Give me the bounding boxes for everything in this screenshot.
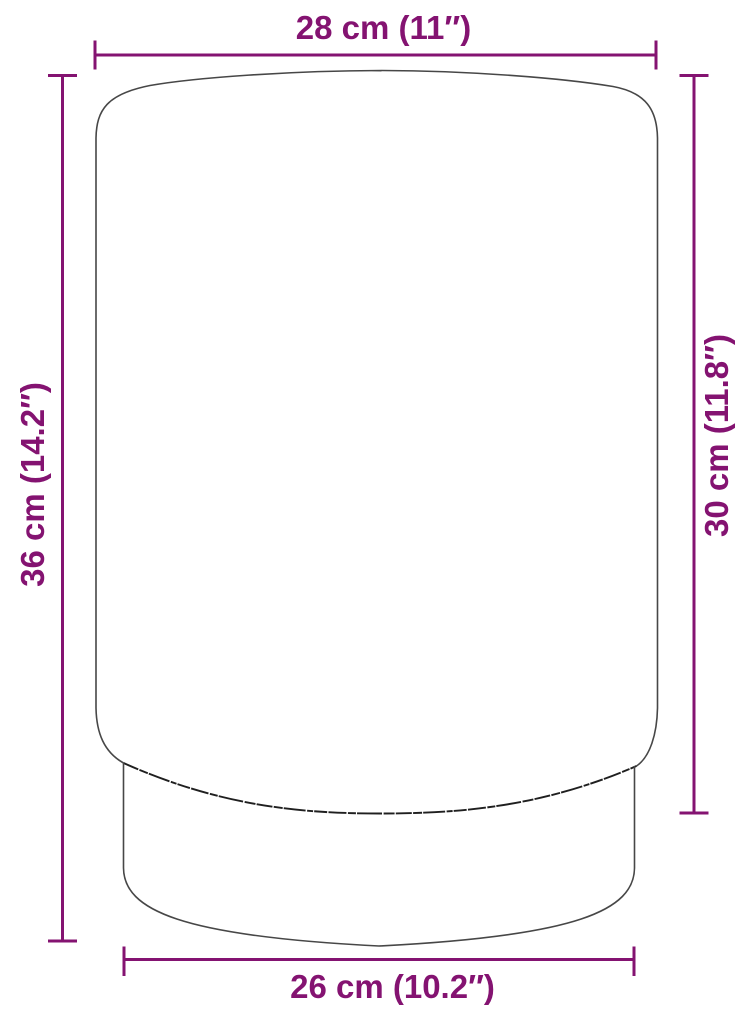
svg-text:26 cm (10.2″): 26 cm (10.2″) [290,968,495,1005]
svg-text:36 cm (14.2″): 36 cm (14.2″) [14,382,51,587]
svg-text:30 cm (11.8″): 30 cm (11.8″) [698,334,735,537]
svg-text:28 cm (11″): 28 cm (11″) [296,9,471,46]
